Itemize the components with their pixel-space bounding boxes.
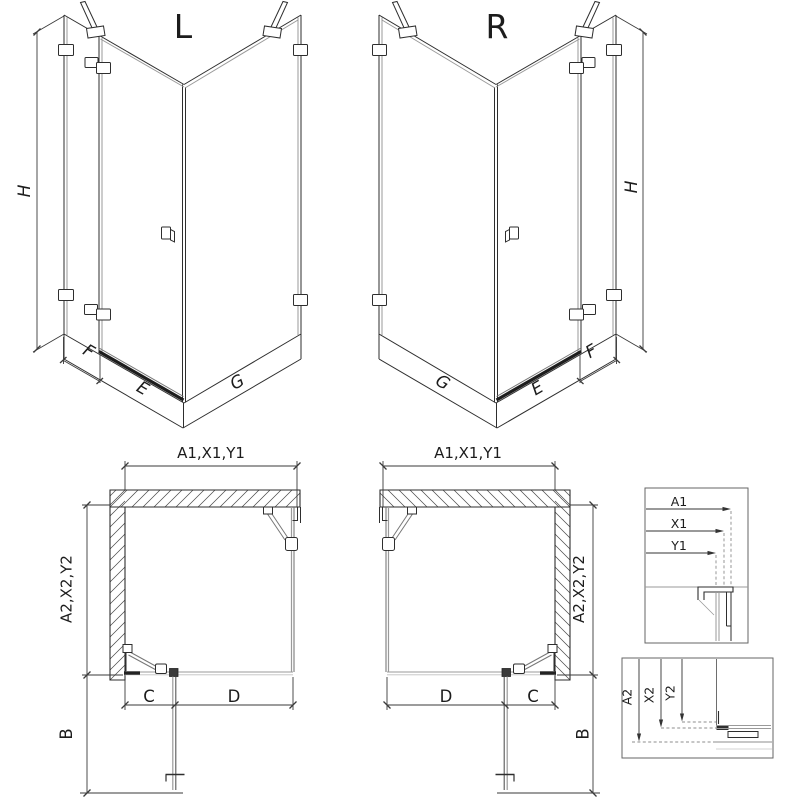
plan-depth-dim-left: A2,X2,Y2 (58, 555, 76, 623)
detail-x2-label: X2 (642, 687, 657, 704)
door-projection-label-left: B (57, 728, 76, 739)
detail-x1-label: X1 (671, 516, 688, 531)
width-detail-frame (645, 488, 748, 643)
shower-enclosure-drawing: L H F E G R H F E G A1,X1,Y1 A2,X2,Y2 C … (0, 0, 800, 800)
depth-measure-detail: A2 X2 Y2 (620, 658, 774, 758)
plan-depth-dim-right: A2,X2,Y2 (570, 555, 588, 623)
height-dim-label-left: H (15, 184, 35, 197)
plan-width-dim-left: A1,X1,Y1 (177, 444, 245, 462)
detail-y2-label: Y2 (663, 685, 678, 702)
segment-c-label-left: C (143, 687, 155, 706)
height-dim-label-right: H (622, 180, 642, 193)
arrowheads (637, 714, 684, 742)
side-width-label-right: G (432, 371, 453, 395)
variant-label-left: L (174, 7, 193, 46)
detail-y1-label: Y1 (670, 538, 687, 553)
door-width-label-right: E (528, 377, 548, 400)
segment-c-label-right: C (527, 687, 539, 706)
plan-width-dim-right: A1,X1,Y1 (434, 444, 502, 462)
width-measure-detail: A1 X1 Y1 (645, 488, 748, 643)
technical-drawing-sheet: L H F E G R H F E G A1,X1,Y1 A2,X2,Y2 C … (0, 0, 800, 800)
detail-a2-label: A2 (620, 689, 635, 706)
segment-d-label-right: D (440, 687, 453, 706)
door-width-label-left: E (133, 377, 153, 400)
depth-detail-frame (622, 658, 773, 758)
detail-a1-label: A1 (671, 494, 688, 509)
side-width-label-left: G (227, 371, 248, 395)
segment-d-label-left: D (228, 687, 241, 706)
door-projection-label-right: B (574, 728, 593, 739)
iso-view-left: L H F E G (15, 2, 308, 429)
plan-view-right: A1,X1,Y1 A2,X2,Y2 D C B (380, 444, 601, 797)
plan-view-left: A1,X1,Y1 A2,X2,Y2 C D B (57, 444, 301, 797)
iso-view-right: R H F E G (373, 2, 648, 429)
variant-label-right: R (486, 7, 509, 46)
